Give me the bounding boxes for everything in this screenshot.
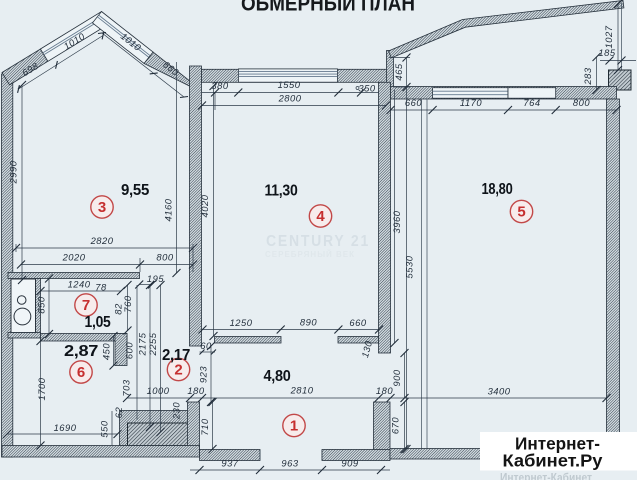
svg-text:465: 465 [393, 63, 404, 80]
svg-text:937: 937 [221, 458, 238, 469]
svg-text:4,80: 4,80 [264, 368, 291, 385]
svg-text:1027: 1027 [603, 25, 614, 48]
svg-text:900: 900 [391, 369, 402, 386]
svg-text:4160: 4160 [163, 198, 174, 221]
svg-text:60: 60 [200, 340, 212, 351]
svg-text:2810: 2810 [290, 385, 314, 396]
svg-text:2: 2 [174, 362, 182, 379]
svg-text:3960: 3960 [391, 210, 402, 233]
svg-text:3400: 3400 [488, 386, 511, 397]
svg-text:ОБМЕРНЫЙ ПЛАН: ОБМЕРНЫЙ ПЛАН [241, 0, 415, 16]
svg-text:5: 5 [517, 204, 525, 221]
svg-text:760: 760 [122, 295, 133, 312]
svg-text:450: 450 [101, 343, 112, 360]
svg-text:Интернет-Кабинет: Интернет-Кабинет [500, 473, 592, 480]
svg-text:2820: 2820 [90, 235, 114, 246]
svg-text:1250: 1250 [230, 317, 253, 328]
svg-text:283: 283 [582, 67, 593, 85]
svg-text:230: 230 [171, 402, 182, 420]
svg-text:909: 909 [341, 458, 358, 469]
svg-text:4: 4 [316, 208, 325, 225]
svg-text:62: 62 [113, 407, 124, 419]
svg-text:710: 710 [199, 418, 210, 435]
svg-text:18,80: 18,80 [482, 181, 513, 198]
svg-text:2800: 2800 [278, 93, 302, 104]
svg-text:764: 764 [523, 97, 540, 108]
svg-text:660: 660 [349, 317, 366, 328]
svg-text:4020: 4020 [199, 194, 210, 217]
svg-text:2255: 2255 [147, 332, 158, 356]
svg-text:1700: 1700 [36, 377, 47, 400]
svg-text:Кабинет.Ру: Кабинет.Ру [503, 451, 603, 471]
svg-text:1: 1 [290, 418, 298, 435]
svg-text:2,17: 2,17 [162, 347, 190, 364]
svg-text:195: 195 [147, 273, 164, 284]
svg-text:185: 185 [598, 47, 615, 58]
svg-text:78: 78 [95, 282, 107, 293]
svg-text:890: 890 [300, 317, 317, 328]
svg-text:2175: 2175 [137, 332, 148, 356]
svg-text:2990: 2990 [8, 160, 19, 184]
svg-text:82: 82 [113, 303, 124, 315]
svg-text:180: 180 [187, 385, 204, 396]
svg-text:1170: 1170 [460, 97, 482, 108]
svg-text:6: 6 [77, 364, 85, 381]
svg-text:963: 963 [281, 458, 298, 469]
svg-text:5530: 5530 [404, 255, 415, 278]
svg-text:9,55: 9,55 [121, 182, 150, 199]
svg-text:550: 550 [99, 420, 110, 437]
svg-text:1550: 1550 [278, 79, 301, 90]
svg-text:3: 3 [98, 199, 106, 216]
svg-text:850: 850 [36, 296, 47, 313]
svg-text:800: 800 [156, 252, 173, 263]
svg-text:CENTURY 21: CENTURY 21 [266, 233, 370, 250]
svg-text:7: 7 [82, 297, 90, 314]
svg-text:800: 800 [573, 97, 590, 108]
svg-text:923: 923 [198, 366, 209, 383]
svg-text:2020: 2020 [62, 252, 86, 263]
svg-text:СЕРЕБРЯНЫЙ ВЕК: СЕРЕБРЯНЫЙ ВЕК [265, 250, 355, 259]
svg-text:1690: 1690 [54, 422, 77, 433]
svg-text:660: 660 [405, 97, 422, 108]
svg-text:600: 600 [124, 342, 135, 359]
svg-text:11,30: 11,30 [265, 183, 298, 200]
svg-text:670: 670 [390, 417, 401, 434]
svg-text:703: 703 [121, 379, 132, 396]
svg-text:2,87: 2,87 [64, 343, 98, 360]
svg-text:1,05: 1,05 [85, 314, 112, 331]
svg-text:350: 350 [358, 83, 375, 94]
svg-text:1240: 1240 [68, 279, 91, 290]
